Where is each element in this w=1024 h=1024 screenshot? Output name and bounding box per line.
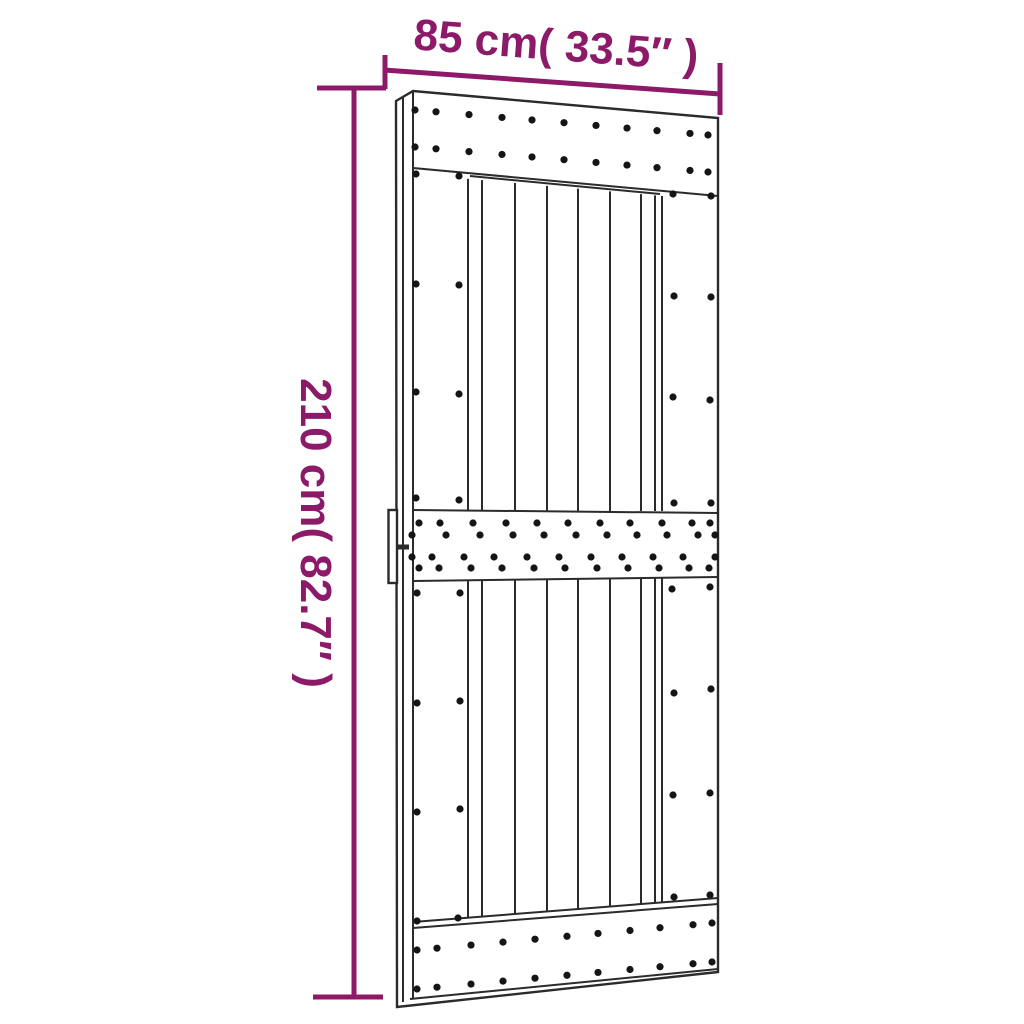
screw-dot	[655, 564, 662, 571]
screw-dot	[626, 966, 633, 973]
screw-dot	[531, 975, 538, 982]
screw-dot	[564, 519, 571, 526]
screw-dot	[563, 972, 570, 979]
screw-dot	[669, 393, 676, 400]
screw-dot	[413, 589, 420, 596]
screw-dot	[498, 114, 505, 121]
screw-dot	[413, 985, 420, 992]
screw-dot	[456, 805, 463, 812]
screw-dot	[626, 519, 633, 526]
screw-dot	[509, 531, 516, 538]
screw-dot	[592, 122, 599, 129]
screw-dot	[689, 960, 696, 967]
screw-dot	[490, 553, 497, 560]
screw-dot	[498, 151, 505, 158]
screw-dot	[685, 564, 692, 571]
screw-dot	[707, 293, 714, 300]
screw-dot	[686, 130, 693, 137]
screw-dot	[476, 531, 483, 538]
screw-dot	[593, 564, 600, 571]
screw-dot	[455, 496, 462, 503]
screw-dot	[669, 791, 676, 798]
screw-dot	[711, 553, 718, 560]
screw-dot	[626, 927, 633, 934]
screw-dot	[555, 553, 562, 560]
door-drawing	[389, 91, 719, 1007]
screw-dot	[455, 281, 462, 288]
screw-dot	[563, 933, 570, 940]
screw-dot	[412, 388, 419, 395]
handle-bar	[389, 510, 398, 583]
screw-dot	[499, 978, 506, 985]
screw-dot	[679, 553, 686, 560]
screw-dot	[415, 519, 422, 526]
product-dimension-diagram: 85 cm( 33.5″ ) 210 cm( 82.7″ )	[0, 0, 1024, 1024]
screw-dot	[413, 946, 420, 953]
screw-dot	[432, 108, 439, 115]
screw-dot	[649, 553, 656, 560]
screw-dot	[456, 697, 463, 704]
screw-dot	[560, 156, 567, 163]
screw-dot	[670, 689, 677, 696]
height-dimension-label: 210 cm( 82.7″ )	[291, 378, 340, 688]
screw-dot	[469, 519, 476, 526]
screw-dot	[467, 564, 474, 571]
screw-dot	[523, 553, 530, 560]
screw-dot	[498, 564, 505, 571]
screw-dot	[442, 531, 449, 538]
screw-dot	[694, 531, 701, 538]
screw-dot	[706, 891, 713, 898]
screw-dot	[653, 127, 660, 134]
screw-dot	[465, 111, 472, 118]
screw-dot	[415, 564, 422, 571]
diagram-canvas: 85 cm( 33.5″ ) 210 cm( 82.7″ )	[0, 0, 1024, 1024]
screw-dot	[669, 190, 676, 197]
screw-dot	[670, 893, 677, 900]
screw-dot	[708, 919, 715, 926]
screw-dot	[413, 808, 420, 815]
screw-dot	[705, 564, 712, 571]
screw-dot	[413, 699, 420, 706]
screw-dot	[433, 945, 440, 952]
screw-dot	[706, 519, 713, 526]
height-dimension: 210 cm( 82.7″ )	[291, 86, 386, 999]
screw-dot	[656, 963, 663, 970]
screw-dot	[587, 553, 594, 560]
screw-dot	[594, 930, 601, 937]
screw-dot	[432, 145, 439, 152]
screw-dot	[624, 564, 631, 571]
screw-dot	[502, 519, 509, 526]
screw-dot	[408, 553, 415, 560]
screw-dot	[528, 116, 535, 123]
screw-dot	[707, 192, 714, 199]
screw-dot	[663, 531, 670, 538]
screw-dot	[467, 980, 474, 987]
screw-dot	[533, 519, 540, 526]
screw-dot	[560, 119, 567, 126]
screw-dot	[656, 924, 663, 931]
screw-dot	[455, 172, 462, 179]
screw-dot	[706, 396, 713, 403]
screw-dot	[596, 519, 603, 526]
screw-dot	[456, 589, 463, 596]
screw-dot	[633, 531, 640, 538]
screw-dot	[499, 939, 506, 946]
screw-dot	[686, 167, 693, 174]
screw-dot	[428, 553, 435, 560]
screw-dot	[653, 164, 660, 171]
screw-dot	[668, 585, 675, 592]
door-outline	[396, 91, 718, 1007]
screw-dot	[707, 685, 714, 692]
screw-dot	[540, 531, 547, 538]
screw-dot	[435, 564, 442, 571]
screw-dot	[465, 148, 472, 155]
screw-dot	[688, 519, 695, 526]
screw-dot	[411, 143, 418, 150]
screw-dot	[704, 168, 711, 175]
screw-dot	[433, 984, 440, 991]
screw-dot	[530, 564, 537, 571]
screw-dot	[707, 499, 714, 506]
screw-dot	[706, 583, 713, 590]
screw-dot	[711, 531, 718, 538]
screw-dot	[528, 153, 535, 160]
screw-dot	[594, 969, 601, 976]
screw-dot	[689, 921, 696, 928]
screw-dot	[467, 941, 474, 948]
width-dimension-label: 85 cm( 33.5″ )	[412, 10, 700, 80]
screw-dot	[460, 553, 467, 560]
screw-dot	[623, 161, 630, 168]
screw-dot	[572, 531, 579, 538]
screw-dot	[561, 564, 568, 571]
screw-dot	[658, 519, 665, 526]
screw-dot	[623, 124, 630, 131]
screw-dot	[670, 292, 677, 299]
screw-dot	[704, 131, 711, 138]
screw-dot	[706, 789, 713, 796]
screw-dot	[412, 280, 419, 287]
screw-dot	[408, 531, 415, 538]
screw-dot	[670, 499, 677, 506]
screw-dot	[618, 553, 625, 560]
screw-dot	[708, 958, 715, 965]
screw-dot	[413, 917, 420, 924]
screw-dot	[412, 494, 419, 501]
screw-dot	[436, 519, 443, 526]
screw-dot	[592, 159, 599, 166]
screw-dot	[531, 936, 538, 943]
screw-dot	[454, 914, 461, 921]
screw-dot	[411, 106, 418, 113]
screw-dot	[455, 390, 462, 397]
screw-dot	[412, 170, 419, 177]
screw-dot	[603, 531, 610, 538]
